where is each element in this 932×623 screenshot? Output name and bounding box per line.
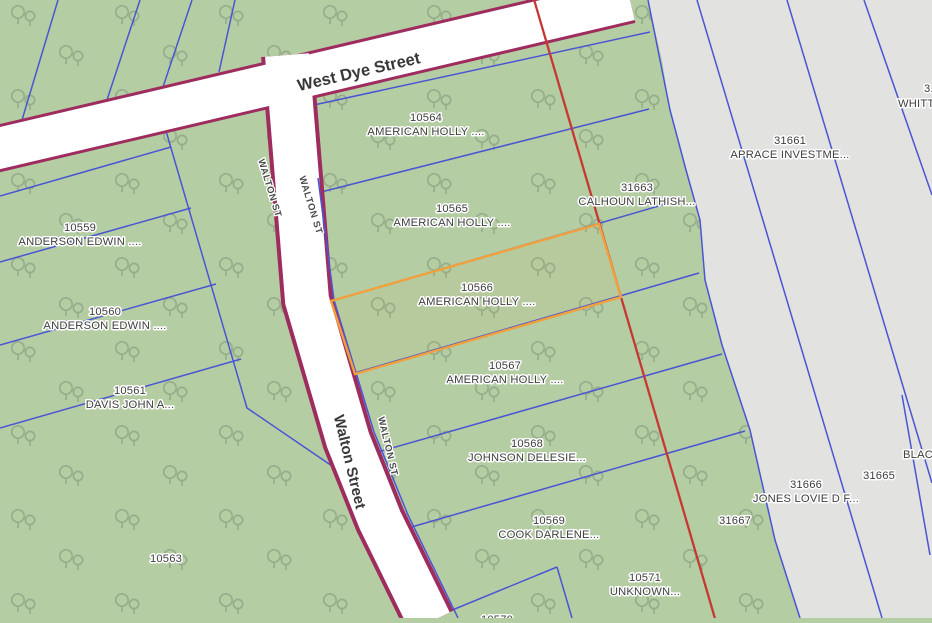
parcel-id: 10564	[410, 112, 442, 124]
parcel-id: 31661	[774, 135, 806, 147]
parcel-owner: DAVIS JOHN A...	[86, 399, 175, 411]
parcel-label-10563[interactable]: 10563	[150, 553, 182, 565]
parcel-id: 31665	[863, 470, 895, 482]
parcel-id: 10569	[533, 515, 565, 527]
parcel-owner: CALHOUN LATHISH...	[578, 196, 695, 208]
parcel-owner: UNKNOWN...	[610, 586, 680, 598]
parcel-id: 31667	[719, 515, 751, 527]
parcel-label-31667[interactable]: 31667	[719, 515, 751, 527]
parcel-id: 31663	[621, 182, 653, 194]
parcel-id: 3...	[924, 83, 932, 95]
parcel-owner: AMERICAN HOLLY ....	[446, 374, 563, 386]
parcel-id: 10568	[511, 438, 543, 450]
parcel-id: 10561	[114, 385, 146, 397]
parcel-owner: JOHNSON DELESIE...	[468, 452, 586, 464]
parcel-id: 10565	[436, 203, 468, 215]
parcel-id: 10567	[489, 360, 521, 372]
parcel-owner: ANDERSON EDWIN ....	[43, 320, 166, 332]
parcel-owner: BLAC...	[903, 449, 932, 461]
parcel-owner: APRACE INVESTME...	[730, 149, 849, 161]
parcel-owner: COOK DARLENE...	[498, 529, 599, 541]
parcel-owner: AMERICAN HOLLY ....	[418, 296, 535, 308]
parcel-owner: WHITT...	[898, 98, 932, 110]
parcel-id: 10563	[150, 553, 182, 565]
parcel-owner: ANDERSON EDWIN ....	[18, 236, 141, 248]
parcel-map-canvas[interactable]: West Dye Street Walton Street WALTON ST …	[0, 0, 932, 618]
parcel-id: 10559	[64, 222, 96, 234]
parcel-owner: JONES LOVIE D F...	[753, 493, 859, 505]
parcel-id: 31666	[790, 479, 822, 491]
parcel-id: 10566	[461, 282, 493, 294]
parcel-id: 10571	[629, 572, 661, 584]
parcel-owner: AMERICAN HOLLY ....	[393, 217, 510, 229]
parcel-owner: AMERICAN HOLLY ....	[367, 126, 484, 138]
parcel-id: 10570	[481, 614, 513, 618]
parcel-label-31665[interactable]: 31665	[863, 470, 895, 482]
parcel-id: 10560	[89, 306, 121, 318]
parcel-label-10570[interactable]: 10570	[481, 614, 513, 618]
parcel-label-blac-cut[interactable]: BLAC...	[903, 449, 932, 461]
